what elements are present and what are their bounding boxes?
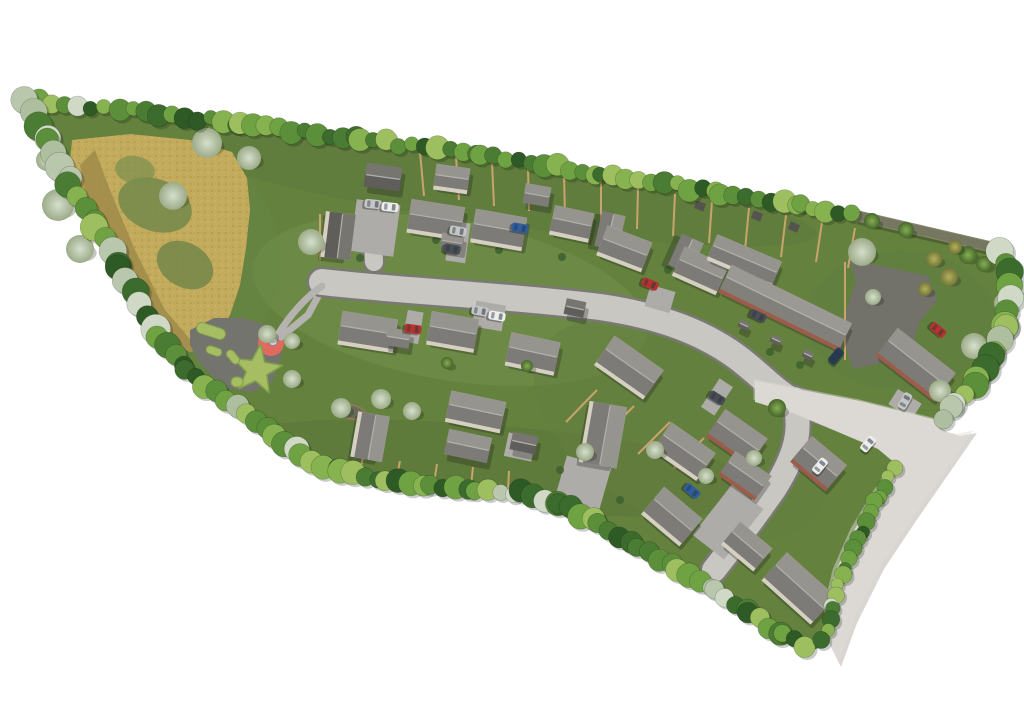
fence [508,471,509,490]
car [379,201,399,213]
shrub [796,361,804,369]
pale-hedge-tree [934,410,953,429]
site-plan-rendering [0,0,1024,723]
hedge-tree [813,631,830,648]
pale-tree [646,441,664,459]
shrub [616,496,624,504]
olive-tree [918,282,932,296]
shrub [558,253,566,261]
play-feature [231,377,243,387]
olive-tree [948,240,962,254]
house [363,163,407,198]
green-tree [441,357,453,369]
olive-tree [926,251,942,267]
olive-tree [940,268,958,286]
pale-tree [576,443,594,461]
green-tree [864,213,880,229]
pale-tree [258,325,276,343]
fence [637,187,638,229]
pale-tree [698,468,714,484]
pale-tree [298,229,324,255]
shrub [556,466,564,474]
pale-tree [331,398,351,418]
house [318,211,356,265]
pale-tree [237,146,261,170]
pale-tree [746,450,762,466]
green-tree [521,360,533,372]
hedge-tree [96,99,111,114]
pale-tree [403,402,421,420]
car [362,198,382,210]
pale-tree [284,333,300,349]
hedge-tree [188,112,206,130]
pale-tree [159,182,187,210]
pale-tree [371,389,391,409]
house [521,183,555,214]
pale-tree [865,289,881,305]
green-tree [768,399,786,417]
site-plan-page [0,0,1024,723]
hedge-tree [390,139,406,155]
pale-tree [283,370,301,388]
hedge-tree [843,205,860,222]
shrub [356,254,364,262]
hedge-tree [794,636,815,657]
pale-tree [848,238,876,266]
house [433,164,475,197]
green-tree [898,222,914,238]
pale-tree [192,128,222,158]
hedge-tree [83,101,98,116]
